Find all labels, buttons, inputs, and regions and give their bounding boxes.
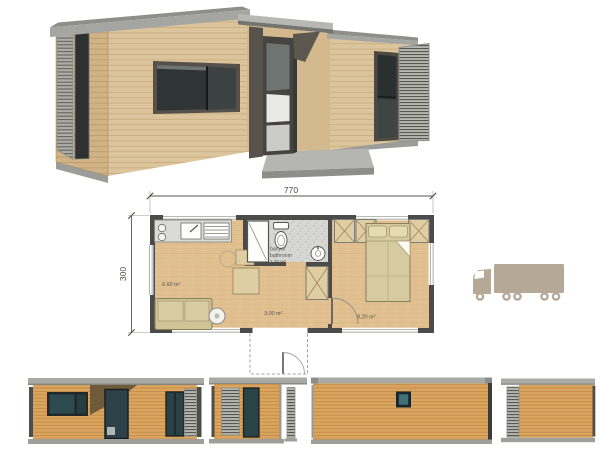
corner-post: [593, 386, 596, 437]
base-band: [501, 438, 595, 442]
entry-door-arc: [283, 353, 305, 375]
stove-burner: [158, 233, 165, 240]
window-opening-kitchen: [163, 215, 236, 221]
double-bed: [366, 224, 410, 302]
wardrobe-hall: [306, 267, 328, 300]
louver-shutter: [185, 389, 197, 436]
kitchen-counter: [155, 220, 232, 242]
round-table: [209, 308, 225, 324]
elevation-rear: [311, 378, 492, 445]
house-3d-render: [50, 7, 429, 184]
area-label-living: 6.60 m²: [162, 282, 180, 288]
elevation-side-right: [209, 378, 307, 444]
entry-door-3d: [249, 27, 297, 159]
w ood-wall: [519, 385, 593, 438]
area-label-bedroom: 8.20 m²: [357, 315, 375, 321]
elevation-side-left: [501, 379, 595, 443]
corner-post: [197, 387, 202, 437]
louver-shutter: [222, 388, 240, 435]
louver-shutter: [507, 387, 519, 437]
dimension-width: 770: [147, 185, 436, 213]
shower: [248, 221, 269, 262]
roof-band: [28, 378, 204, 385]
bathroom-label-line1: banyo/: [270, 247, 286, 253]
dimension-depth-value: 300: [118, 267, 128, 281]
toilet: [274, 223, 289, 249]
corner-post: [488, 383, 492, 440]
entry-porch: [250, 334, 308, 375]
elevation-small-window: [396, 392, 411, 408]
window-opening-bedroom-bottom: [342, 328, 418, 334]
roof-band: [311, 378, 492, 384]
corner-post: [29, 387, 33, 437]
stove-burner: [158, 224, 165, 231]
corner-post: [212, 386, 215, 437]
shutter-window-3d: [374, 44, 429, 142]
sofa: [155, 299, 212, 330]
elevation-door: [244, 388, 260, 437]
dining-table: [233, 268, 259, 294]
dimension-width-value: 770: [284, 185, 298, 195]
open-louver-shutter: [399, 44, 429, 142]
roof-band: [209, 378, 307, 385]
truck-trailer: [494, 264, 564, 293]
base-band: [209, 439, 284, 444]
pillow: [390, 226, 408, 237]
detached-louver-column: [287, 388, 295, 439]
area-label-bathroom: 2.40 m²: [270, 259, 286, 264]
elevation-front: [28, 378, 204, 444]
pillow: [369, 226, 387, 237]
drawing-canvas: 6.60 m² banyo/ bathroom 2.40 m² 3.00 m² …: [0, 0, 600, 450]
floor-plan: 6.60 m² banyo/ bathroom 2.40 m² 3.00 m² …: [118, 185, 436, 374]
base-band: [311, 440, 492, 445]
elevation-door: [105, 390, 128, 439]
cargo-truck-icon: [473, 264, 564, 301]
window-opening-left: [148, 245, 154, 295]
elevation-tall-window: [166, 392, 184, 436]
left-end-window: [75, 30, 89, 160]
front-window-3d: [153, 61, 240, 114]
louver-vent-3d: [57, 33, 73, 160]
window-opening-right: [429, 243, 435, 285]
dimension-depth: 300: [118, 212, 149, 335]
wardrobe-bedroom-left1: [335, 220, 355, 243]
entry-door-opening: [253, 328, 308, 334]
area-label-hall: 3.00 m²: [264, 311, 282, 317]
wash-basin: [311, 247, 325, 261]
wardrobe-bedroom-right: [409, 220, 430, 243]
base-band: [28, 439, 204, 444]
elevation-window: [47, 392, 88, 416]
architectural-sheet: 6.60 m² banyo/ bathroom 2.40 m² 3.00 m² …: [0, 0, 600, 450]
